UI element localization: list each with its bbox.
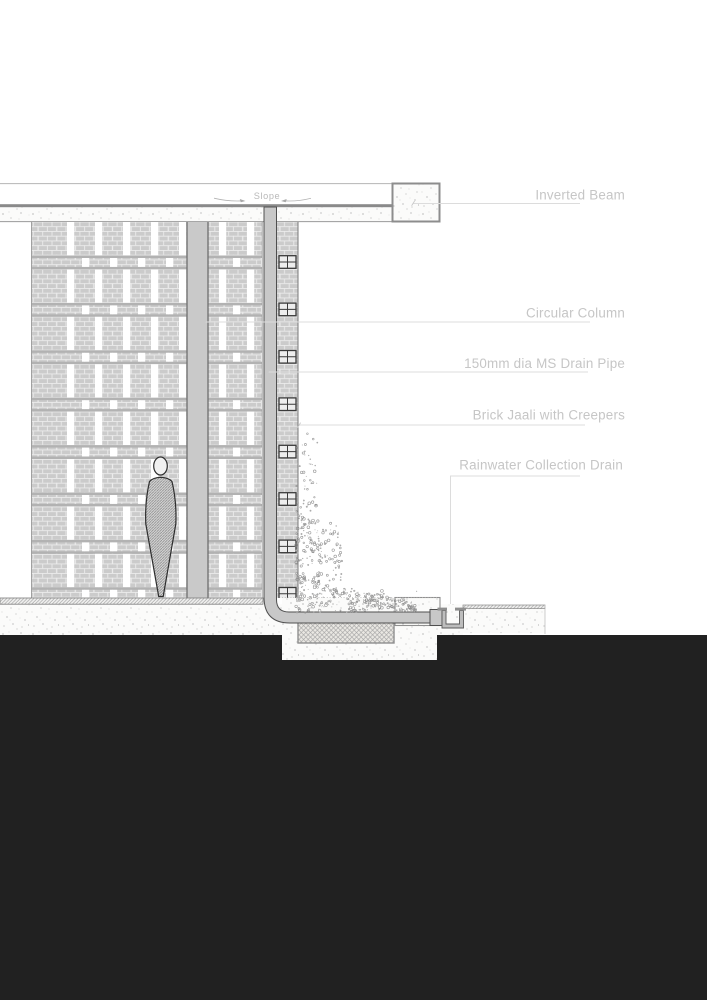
creeper-dot [323, 606, 324, 607]
creeper-dot [317, 548, 319, 550]
creeper-dot [321, 557, 323, 559]
jaali-slot [95, 269, 102, 303]
creeper-dot [298, 607, 299, 608]
creeper-dot [315, 529, 316, 530]
creeper-dot [308, 589, 309, 590]
creeper-dot [411, 601, 412, 602]
creeper-dot [318, 540, 320, 542]
creeper-dot [296, 569, 297, 570]
jaali-slot [219, 412, 226, 446]
architectural-section-canvas: Inverted Beam Circular Column 150mm dia … [0, 0, 707, 1000]
creeper-dot [296, 612, 298, 614]
creeper-dot [309, 556, 310, 557]
creeper-dot [337, 593, 339, 595]
jaali-slot [247, 506, 254, 540]
creeper-dot [317, 598, 318, 599]
ground-under-pit [282, 660, 437, 1000]
creeper-dot [299, 581, 300, 582]
creeper-dot [374, 594, 376, 596]
jaali-band-slot [166, 400, 173, 409]
jaali-slot [67, 222, 74, 256]
creeper-dot [339, 547, 341, 549]
creeper-dot [335, 567, 336, 568]
callout-inverted-beam: Inverted Beam [535, 188, 625, 203]
jaali-band-slot [82, 400, 89, 409]
creeper-dot [393, 610, 394, 611]
leader-lines [205, 204, 590, 605]
creeper-dot [366, 593, 367, 594]
creeper-dot [314, 496, 315, 497]
creeper-dot [322, 605, 323, 606]
creeper-dot [318, 536, 319, 537]
floor-finish-strip [0, 598, 263, 604]
creeper-dot [359, 609, 360, 610]
creeper-dot [307, 488, 309, 490]
creeper-dot [297, 552, 298, 553]
drain-cap-left [438, 608, 448, 611]
jaali-slot [179, 412, 186, 446]
creeper-dot [316, 601, 318, 603]
creeper-dot [320, 603, 322, 605]
creeper-dot [306, 558, 307, 559]
creeper-dot [303, 542, 305, 544]
creeper-dot [307, 518, 309, 520]
creeper-dot [345, 589, 346, 590]
jaali-band-slot [82, 495, 89, 504]
jaali-slot [95, 506, 102, 540]
jaali-slot [123, 459, 130, 493]
creeper-dot [367, 609, 368, 610]
roof-slab [0, 184, 440, 222]
jaali-slot [67, 459, 74, 493]
creeper-dot [317, 520, 319, 522]
creeper-dot [393, 607, 395, 609]
jaali-band-slot [138, 448, 145, 457]
creeper-dot [309, 463, 310, 464]
jaali-slot [219, 364, 226, 398]
creeper-dot [320, 573, 323, 576]
creeper-dot [378, 611, 379, 612]
band-stripe [32, 350, 263, 353]
figure-head [154, 457, 168, 475]
creeper-dot [346, 611, 348, 613]
jaali-band-slot [233, 400, 240, 409]
creeper-dot [312, 519, 315, 522]
creeper-dot [323, 597, 324, 598]
creeper-dot [330, 601, 331, 602]
creeper-dot [316, 532, 317, 533]
jaali-slot [219, 554, 226, 588]
creeper-dot [337, 533, 338, 534]
creeper-dot [383, 593, 385, 595]
jaali-slot [247, 364, 254, 398]
jaali-slot [179, 554, 186, 588]
pavement-finish-strip [463, 605, 545, 609]
jaali-band-slot [233, 258, 240, 267]
creeper-dot [309, 543, 310, 544]
creeper-dot [363, 593, 364, 594]
jaali-slot [95, 222, 102, 256]
creeper-dot [312, 580, 314, 582]
creeper-dot [304, 450, 306, 452]
creeper-dot [307, 526, 310, 529]
creeper-dot [377, 593, 379, 595]
jaali-band-slot [233, 353, 240, 362]
creeper-dot [322, 529, 324, 531]
jaali-slot [95, 459, 102, 493]
creeper-dot [341, 560, 343, 562]
slope-screed-band [0, 184, 393, 205]
slope-label: Slope [254, 191, 281, 201]
wall-section [277, 222, 299, 600]
creeper-dot [324, 587, 325, 588]
creeper-dot [310, 464, 311, 465]
creeper-dot [303, 589, 304, 590]
drain-bed-hatch [298, 622, 394, 643]
creeper-dot [311, 482, 313, 484]
creeper-dot [304, 443, 306, 445]
creeper-dot [311, 501, 314, 504]
creeper-dot [318, 571, 319, 572]
creeper-dot [314, 549, 316, 551]
band-stripe [32, 314, 263, 317]
jaali-slot [123, 506, 130, 540]
creeper-dot [315, 505, 316, 506]
creeper-dot [320, 556, 322, 558]
creeper-dot [351, 588, 353, 590]
jaali-band-slot [233, 448, 240, 457]
jaali-band-slot [110, 495, 117, 504]
band-stripe [32, 409, 263, 412]
creeper-dot [379, 605, 380, 606]
creeper-dot [378, 598, 380, 600]
jaali-band-slot [138, 542, 145, 551]
jaali-band-slot [166, 258, 173, 267]
creeper-dot [326, 560, 328, 562]
creeper-dot [339, 594, 341, 596]
jaali-band-slot [166, 448, 173, 457]
creeper-dot [362, 608, 363, 609]
creeper-dot [359, 606, 360, 607]
jaali-slot [219, 222, 226, 256]
ground-right [437, 635, 707, 1000]
jaali-band-slot [233, 590, 240, 599]
jaali-band-slot [138, 590, 145, 599]
creeper-dot [303, 503, 305, 505]
screed-line [0, 204, 397, 207]
creeper-dot [330, 533, 332, 535]
creeper-dot [324, 554, 326, 556]
creeper-dot [307, 605, 308, 606]
jaali-slot [95, 364, 102, 398]
creeper-dot [317, 582, 320, 585]
creeper-dot [330, 529, 331, 530]
creeper-dot [402, 610, 403, 611]
creeper-dot [349, 595, 351, 597]
jaali-band-slot [110, 590, 117, 599]
creeper-dot [354, 590, 355, 591]
jaali-band-slot [110, 448, 117, 457]
jaali-band-slot [233, 495, 240, 504]
circular-column-band [187, 222, 208, 598]
jaali-slot [151, 317, 158, 351]
ground-left [0, 635, 282, 1000]
jaali-slot [151, 269, 158, 303]
creeper-dot [302, 579, 303, 580]
jaali-band-slot [166, 305, 173, 314]
creeper-dot [356, 593, 359, 596]
creeper-dot [321, 593, 322, 594]
pavement-concrete [463, 609, 545, 634]
creeper-dot [298, 502, 299, 503]
creeper-dot [306, 532, 307, 533]
jaali-slot [247, 412, 254, 446]
creeper-dot [335, 525, 336, 526]
creeper-dot [330, 522, 332, 524]
jaali-band-slot [82, 305, 89, 314]
jaali-slot [247, 459, 254, 493]
creeper-dot [300, 580, 301, 581]
creeper-dot [405, 602, 407, 604]
jaali-band-slot [233, 305, 240, 314]
creeper-dot [313, 602, 314, 603]
inverted-beam-block [393, 184, 440, 222]
creeper-dot [304, 535, 306, 537]
jaali-band-slot [166, 590, 173, 599]
creeper-dot [301, 522, 302, 523]
creeper-dot [326, 585, 329, 588]
jaali-slot [151, 412, 158, 446]
creeper-dot [301, 536, 303, 538]
jaali-slot [219, 269, 226, 303]
creeper-dot [327, 555, 328, 556]
jaali-slot [123, 364, 130, 398]
creeper-dot [318, 550, 319, 551]
creeper-dot [308, 564, 309, 565]
jaali-band-slot [110, 400, 117, 409]
creeper-dot [357, 592, 358, 593]
creeper-dot [328, 604, 329, 605]
callout-rainwater-drain: Rainwater Collection Drain [459, 458, 623, 473]
creeper-dot [396, 609, 398, 611]
creeper-dot [308, 502, 311, 505]
creeper-dot [306, 506, 308, 508]
creeper-dot [315, 583, 317, 585]
creeper-dot [302, 586, 303, 587]
creeper-dot [350, 591, 352, 593]
creeper-dot [312, 563, 313, 564]
creeper-dot [298, 587, 299, 588]
jaali-slot [179, 459, 186, 493]
creeper-dot [309, 537, 311, 539]
creeper-dot [315, 604, 316, 605]
jaali-slot [179, 506, 186, 540]
jaali-slot [247, 554, 254, 588]
creeper-dot [303, 500, 304, 501]
creeper-dot [313, 470, 316, 473]
creeper-dot [296, 577, 297, 578]
creeper-dot [307, 599, 309, 601]
creeper-dot [304, 488, 305, 489]
creeper-dot [312, 438, 314, 440]
band-stripe [32, 587, 263, 590]
jaali-band-slot [110, 542, 117, 551]
creeper-dot [319, 559, 320, 560]
creeper-dot [335, 610, 336, 611]
callout-drain-pipe: 150mm dia MS Drain Pipe [464, 356, 625, 371]
jaali-slot [247, 222, 254, 256]
creeper-dot [397, 599, 399, 601]
creeper-dot [376, 603, 377, 604]
callout-brick-jaali: Brick Jaali with Creepers [473, 408, 625, 423]
creepers-foliage [295, 433, 417, 614]
creeper-dot [308, 532, 311, 535]
jaali-band-slot [166, 353, 173, 362]
creeper-dot [336, 544, 338, 546]
jaali-slot [67, 554, 74, 588]
creeper-dot [368, 593, 370, 595]
creeper-dot [387, 602, 389, 604]
creeper-dot [302, 445, 303, 446]
creeper-dot [329, 558, 331, 560]
creeper-dot [313, 585, 314, 586]
creeper-dot [393, 598, 394, 599]
band-stripe [32, 457, 263, 460]
creeper-dot [332, 533, 334, 535]
creeper-dot [313, 612, 314, 613]
creeper-dot [299, 595, 301, 597]
jaali-slot [95, 412, 102, 446]
creeper-dot [416, 591, 417, 592]
creeper-dot [303, 530, 304, 531]
creeper-dot [343, 590, 345, 592]
creeper-dot [316, 544, 319, 547]
creeper-dot [321, 606, 322, 607]
jaali-slot [179, 364, 186, 398]
creeper-dot [314, 576, 316, 578]
creeper-dot [338, 532, 339, 533]
creeper-dot [310, 548, 312, 550]
jaali-band-slot [110, 305, 117, 314]
creeper-dot [353, 604, 354, 605]
creeper-dot [314, 581, 315, 582]
creeper-dot [412, 605, 413, 606]
jaali-slot [219, 459, 226, 493]
section-drawing: Inverted Beam Circular Column 150mm dia … [0, 0, 707, 1000]
creeper-dot [305, 486, 306, 487]
creeper-dot [298, 594, 299, 595]
creeper-dot [318, 538, 320, 540]
band-stripe [32, 398, 263, 401]
drain-cap-right [455, 608, 466, 611]
creeper-dot [334, 555, 337, 558]
creeper-dot [346, 594, 347, 595]
creeper-dot [328, 588, 329, 589]
band-stripe [32, 303, 263, 306]
creeper-dot [332, 578, 334, 580]
ground-mass [0, 635, 707, 1000]
creeper-dot [332, 549, 335, 552]
creeper-dot [329, 580, 331, 582]
band-stripe [32, 445, 263, 448]
creeper-dot [306, 545, 308, 547]
creeper-dot [296, 560, 298, 562]
creeper-dot [310, 540, 312, 542]
creeper-dot [310, 510, 312, 512]
creeper-dot [337, 537, 339, 539]
creeper-dot [308, 522, 310, 524]
creeper-dot [301, 533, 303, 535]
jaali-slot [123, 222, 130, 256]
creeper-dot [299, 465, 301, 467]
creeper-dot [320, 611, 321, 612]
creeper-dot [339, 554, 341, 556]
creeper-dot [296, 504, 297, 505]
creeper-dot [308, 520, 310, 522]
jaali-slot [247, 269, 254, 303]
creeper-dot [308, 455, 309, 456]
creeper-dot [308, 579, 309, 580]
creeper-dot [302, 563, 303, 564]
creeper-dot [351, 610, 353, 612]
creeper-dot [339, 551, 341, 553]
creeper-dot [335, 574, 336, 575]
creeper-dot [313, 586, 316, 589]
creeper-dot [324, 556, 326, 558]
creeper-dot [338, 565, 340, 567]
jaali-slot [67, 269, 74, 303]
creeper-dot [363, 599, 364, 600]
creeper-dot [346, 592, 348, 594]
slab-concrete [0, 207, 394, 222]
creeper-dot [309, 479, 311, 481]
creeper-dot [298, 518, 299, 519]
creeper-dot [370, 605, 371, 606]
creeper-dot [314, 465, 315, 466]
creeper-dot [310, 458, 311, 459]
creeper-dot [341, 592, 344, 595]
creeper-dot [310, 596, 311, 597]
creeper-dot [340, 579, 342, 581]
jaali-band-slot [110, 258, 117, 267]
creeper-dot [300, 513, 302, 515]
creeper-dot [313, 543, 316, 546]
creeper-dot [335, 587, 337, 589]
creeper-dot [296, 550, 298, 552]
creeper-dot [380, 595, 383, 598]
creeper-dot [301, 587, 302, 588]
creeper-dot [313, 595, 316, 598]
jaali-slot [123, 554, 130, 588]
jaali-slot [151, 222, 158, 256]
creeper-dot [301, 519, 303, 521]
creeper-dot [344, 588, 346, 590]
creeper-dot [297, 532, 298, 533]
creeper-dot [297, 536, 299, 538]
creeper-dot [320, 547, 322, 549]
jaali-slot [67, 317, 74, 351]
creeper-dot [375, 601, 376, 602]
creeper-dot [305, 585, 306, 586]
creeper-dot [340, 545, 342, 547]
jaali-band-slot [82, 448, 89, 457]
creeper-dot [399, 610, 401, 612]
band-stripe [32, 256, 263, 259]
creeper-dot [338, 560, 340, 562]
creeper-dot [375, 606, 377, 608]
creeper-dot [300, 565, 302, 567]
creeper-dot [302, 573, 304, 575]
